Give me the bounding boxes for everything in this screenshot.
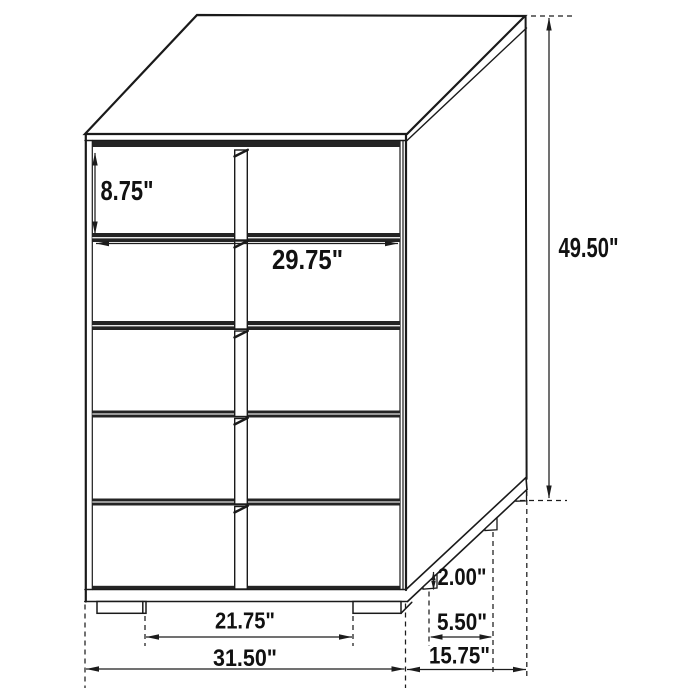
dimension-label-overall-height: 49.50"	[559, 232, 619, 263]
dimension-overall-height: 49.50"	[520, 16, 619, 501]
side-foot-middle	[485, 518, 497, 531]
drawer-1-handle	[235, 150, 248, 240]
side-panel-back-edge	[526, 16, 527, 479]
dimension-label-interior-width: 29.75"	[272, 244, 343, 275]
chest-drawing	[85, 15, 527, 613]
drawer-3-handle	[235, 331, 248, 417]
dimension-foot-height: 2.00"	[431, 564, 486, 591]
front-right-foot	[353, 602, 401, 614]
dimension-label-front-foot-spacing: 21.75"	[215, 608, 275, 634]
dimension-label-drawer-height: 8.75"	[101, 175, 154, 206]
drawer-2-handle	[235, 241, 248, 329]
drawer-5-handle	[235, 507, 248, 590]
dimension-label-side-foot-spacing: 5.50"	[437, 609, 487, 636]
dimension-label-overall-width: 31.50"	[213, 645, 277, 672]
front-right-foot-return	[401, 602, 412, 613]
side-plinth-corner	[526, 478, 527, 490]
dimension-label-foot-height: 2.00"	[438, 564, 487, 591]
dimension-drawer-height: 8.75"	[92, 153, 153, 235]
side-foot-back	[516, 490, 527, 501]
dimension-label-overall-depth: 15.75"	[429, 643, 490, 670]
furniture-dimension-diagram: 8.75" 29.75" 49.50" 2.00" 5.	[0, 0, 700, 700]
drawer-handles	[235, 150, 248, 589]
feet	[97, 490, 527, 613]
top-rail	[92, 141, 400, 147]
chest-top-panel	[85, 15, 525, 134]
diagram-canvas: 8.75" 29.75" 49.50" 2.00" 5.	[0, 0, 700, 700]
drawer-4-handle	[235, 419, 248, 505]
front-left-foot	[97, 602, 146, 614]
dimension-front-foot-spacing: 21.75"	[145, 608, 353, 647]
